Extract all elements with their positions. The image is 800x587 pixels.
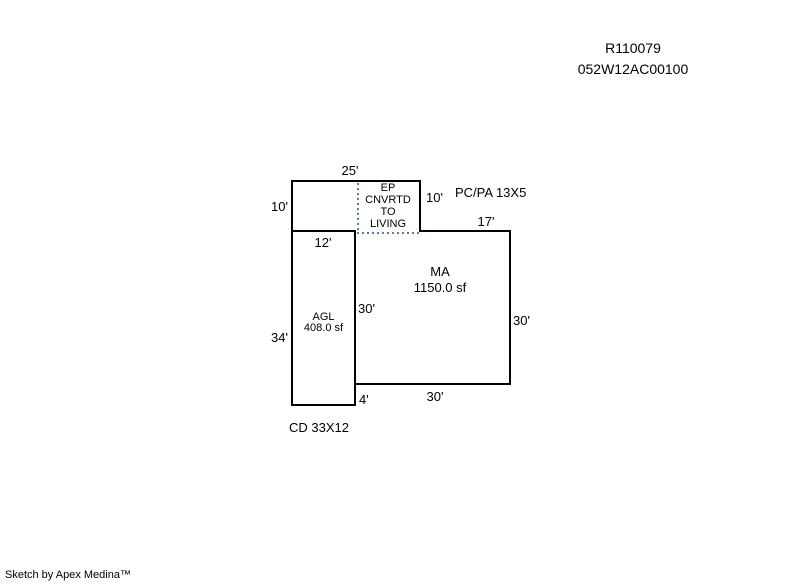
ma-area: 1150.0 sf xyxy=(385,280,495,296)
dimension-ma-left-30: 30' xyxy=(358,302,375,316)
dimension-step-17: 17' xyxy=(470,215,502,229)
property-sketch-page: R110079 052W12AC00100 25' 10' 10' 17' 12… xyxy=(0,0,800,587)
account-number: R110079 xyxy=(552,38,714,59)
ma-code: MA xyxy=(385,264,495,280)
ep-converted-living-label: EP CNVRTD TO LIVING xyxy=(356,182,420,230)
pcpa-label: PC/PA 13X5 xyxy=(455,186,526,200)
agl-area: 408.0 sf xyxy=(292,323,355,334)
dimension-ma-right-30: 30' xyxy=(513,314,530,328)
map-taxlot-number: 052W12AC00100 xyxy=(552,59,714,80)
agl-area-label: AGL 408.0 sf xyxy=(292,312,355,334)
main-area-label: MA 1150.0 sf xyxy=(385,264,495,296)
parcel-id-block: R110079 052W12AC00100 xyxy=(552,38,714,80)
cd-label: CD 33X12 xyxy=(289,421,349,435)
sketch-credit: Sketch by Apex Medina™ xyxy=(5,569,131,581)
dimension-right-upper-10: 10' xyxy=(426,191,443,205)
dimension-agl-left-34: 34' xyxy=(258,331,288,345)
dimension-ma-bottom-30: 30' xyxy=(420,390,450,404)
dimension-notch-4: 4' xyxy=(359,393,369,407)
dimension-top-25: 25' xyxy=(330,164,370,178)
dimension-agl-top-12: 12' xyxy=(306,236,340,250)
dimension-left-upper-10: 10' xyxy=(258,200,288,214)
